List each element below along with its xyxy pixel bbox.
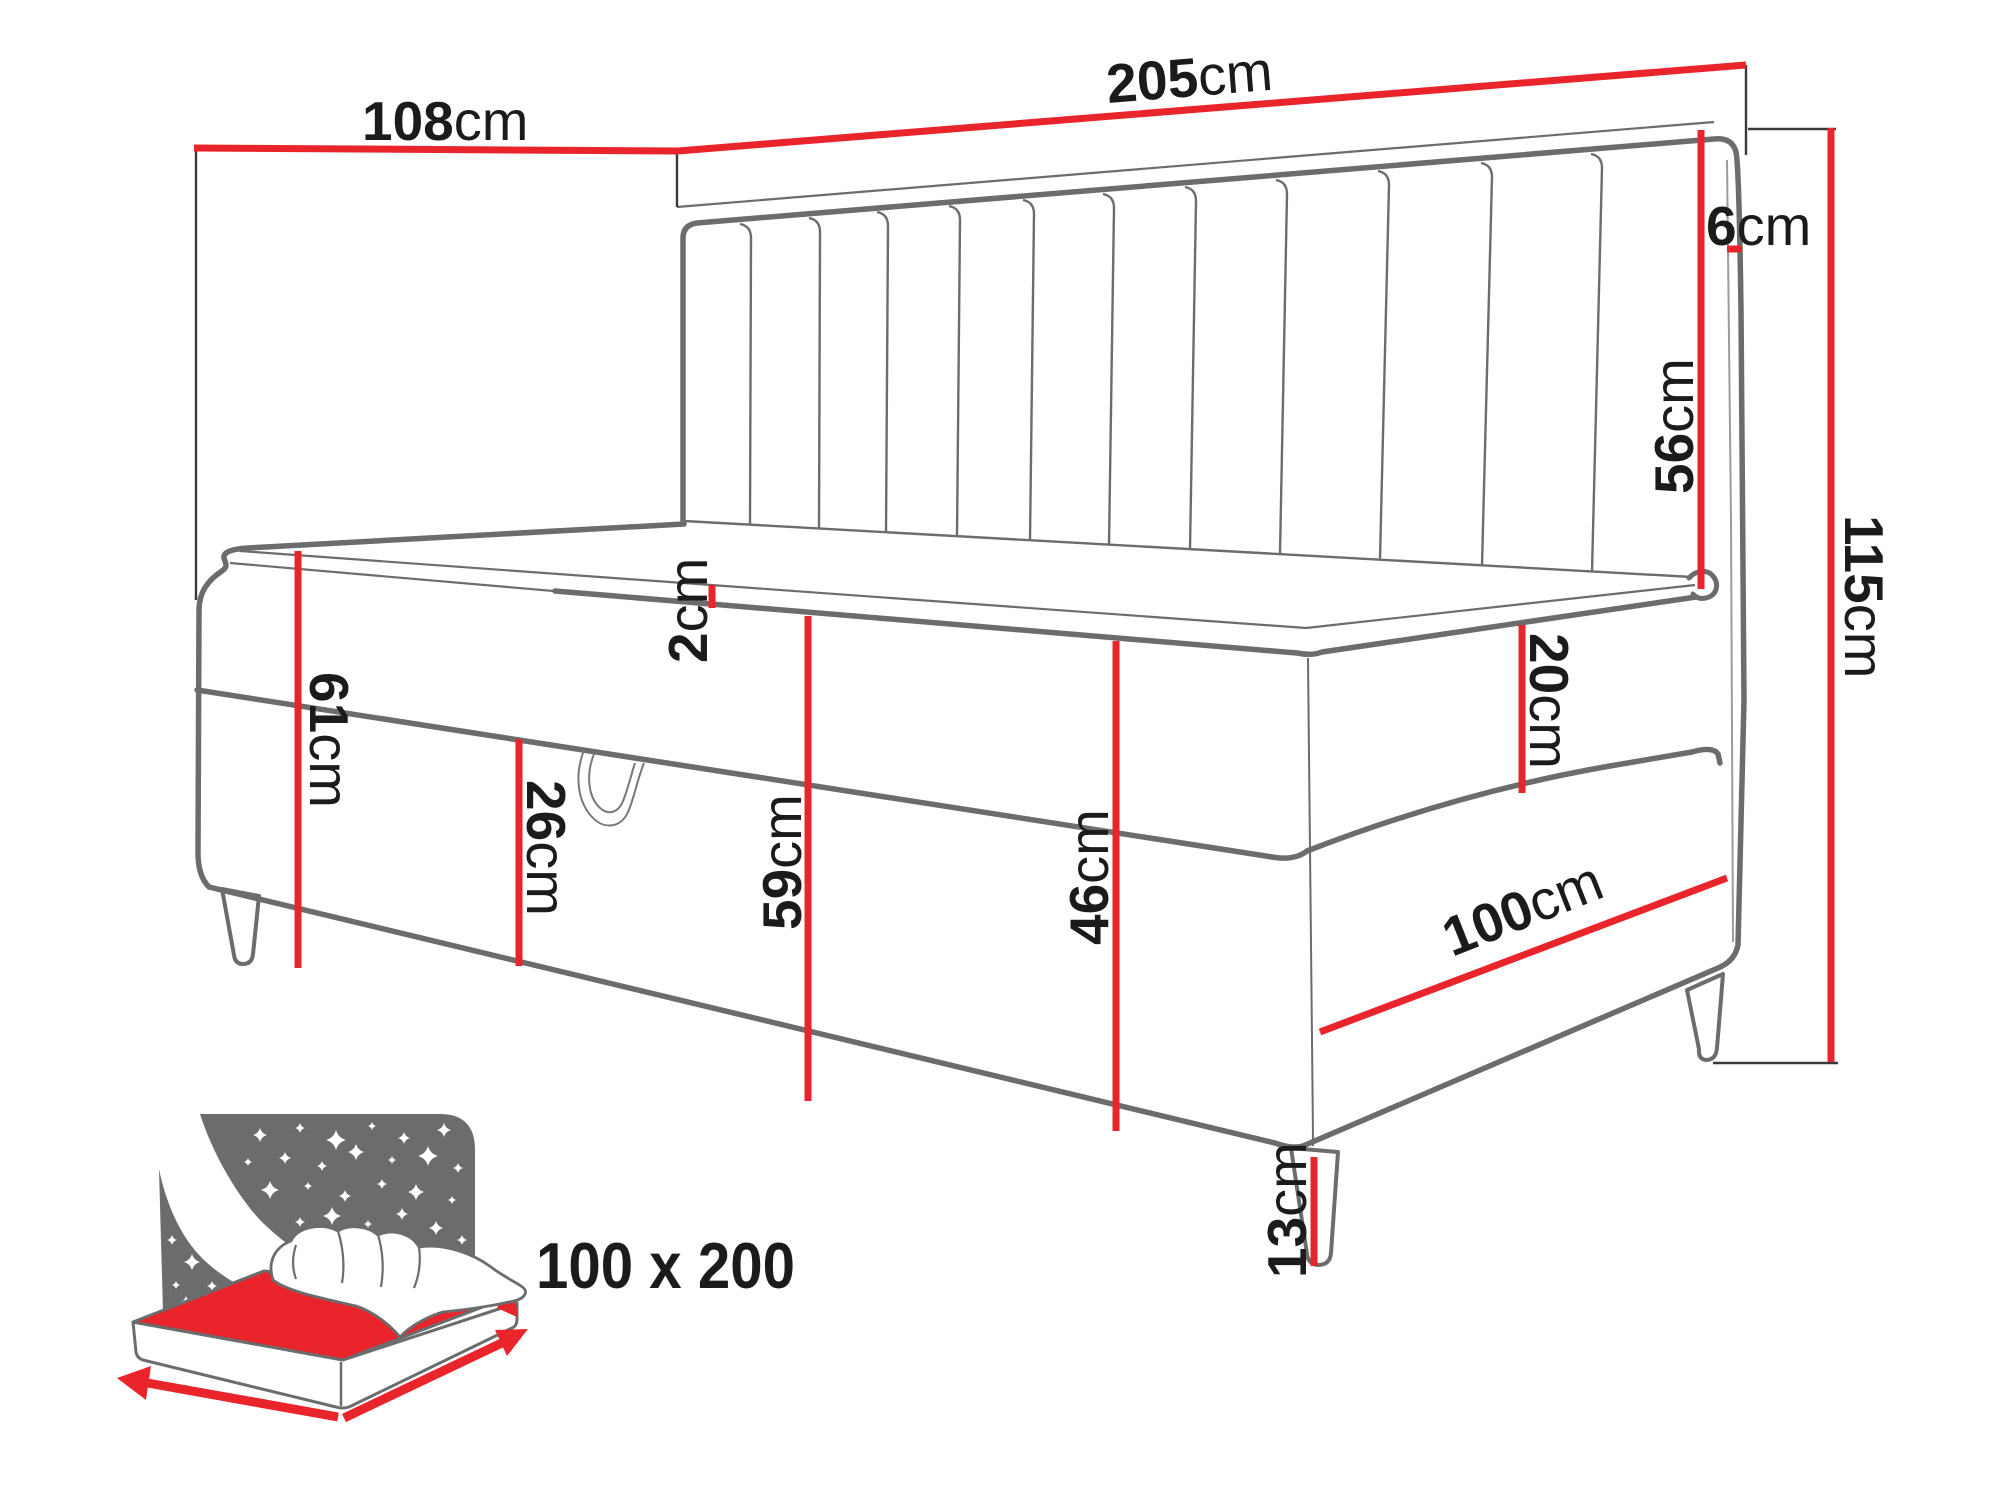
svg-text:59cm: 59cm [750,794,813,930]
svg-text:6cm: 6cm [1706,194,1811,257]
svg-text:61cm: 61cm [298,672,361,808]
svg-text:108cm: 108cm [362,89,528,152]
svg-text:100 x 200: 100 x 200 [536,1229,795,1302]
svg-text:13cm: 13cm [1255,1142,1318,1278]
svg-text:56cm: 56cm [1642,358,1705,494]
svg-text:115cm: 115cm [1833,515,1896,678]
svg-text:205cm: 205cm [1104,39,1275,115]
svg-text:26cm: 26cm [515,780,578,916]
svg-text:46cm: 46cm [1057,809,1120,945]
svg-text:20cm: 20cm [1518,633,1581,769]
svg-text:2cm: 2cm [656,558,719,663]
